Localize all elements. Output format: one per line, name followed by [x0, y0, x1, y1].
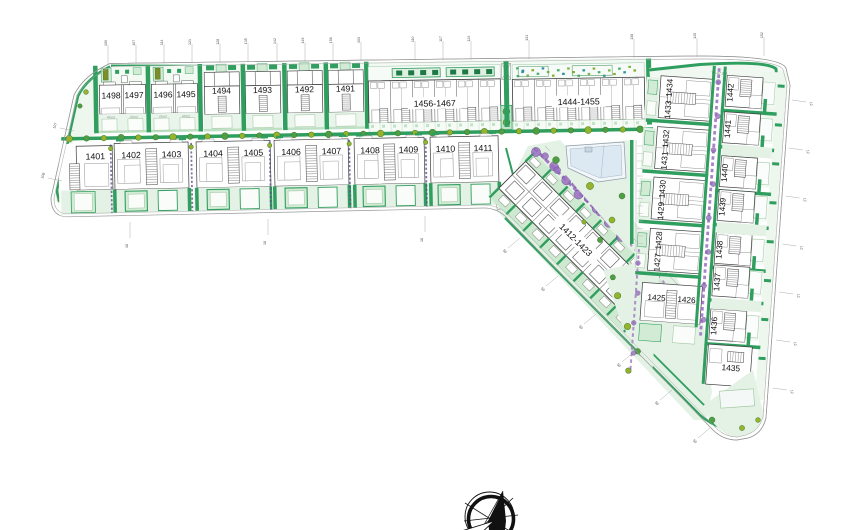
svg-text:1432: 1432	[661, 129, 671, 148]
svg-text:1498: 1498	[101, 90, 121, 100]
svg-text:1437: 1437	[712, 272, 722, 291]
svg-text:1442: 1442	[725, 83, 735, 102]
svg-text:1407: 1407	[322, 146, 342, 156]
svg-text:1402: 1402	[121, 150, 141, 160]
svg-text:100: 100	[104, 40, 108, 46]
svg-text:1408: 1408	[360, 145, 380, 155]
svg-text:12: 12	[789, 390, 794, 395]
svg-text:1401: 1401	[85, 151, 105, 161]
svg-text:1440: 1440	[720, 163, 730, 182]
svg-text:107: 107	[132, 40, 136, 46]
svg-text:1456-1467: 1456-1467	[414, 98, 456, 109]
svg-text:1410: 1410	[436, 144, 456, 154]
svg-text:142: 142	[273, 38, 277, 44]
svg-text:12: 12	[802, 198, 807, 203]
svg-text:131: 131	[525, 35, 529, 41]
svg-text:103: 103	[357, 37, 361, 43]
svg-text:1405: 1405	[244, 148, 264, 158]
svg-text:1497: 1497	[124, 90, 144, 100]
svg-text:1411: 1411	[473, 143, 492, 153]
svg-text:1439: 1439	[717, 197, 727, 216]
svg-text:149: 149	[301, 38, 305, 44]
svg-text:1438: 1438	[714, 240, 724, 259]
svg-text:1433: 1433	[663, 100, 673, 119]
svg-text:1492: 1492	[295, 84, 315, 94]
svg-text:128: 128	[216, 39, 220, 45]
svg-text:1491: 1491	[336, 83, 356, 93]
svg-text:156: 156	[329, 37, 333, 43]
svg-text:1494: 1494	[212, 85, 232, 95]
svg-text:1406: 1406	[281, 147, 301, 157]
svg-text:1430: 1430	[658, 179, 668, 198]
svg-text:145: 145	[693, 33, 697, 39]
svg-text:1444-1455: 1444-1455	[558, 96, 600, 107]
svg-text:18: 18	[420, 238, 424, 242]
svg-text:1428: 1428	[654, 231, 664, 250]
svg-text:12: 12	[805, 150, 810, 155]
svg-text:12: 12	[799, 246, 804, 251]
svg-text:1436: 1436	[709, 316, 719, 335]
svg-text:124: 124	[467, 36, 471, 42]
svg-text:1425: 1425	[647, 293, 666, 303]
svg-text:110: 110	[411, 36, 415, 42]
svg-text:1441: 1441	[723, 119, 733, 138]
svg-text:1496: 1496	[153, 89, 173, 99]
svg-text:114: 114	[160, 39, 164, 45]
svg-text:138: 138	[630, 34, 634, 40]
svg-text:12: 12	[809, 102, 814, 107]
svg-text:1427: 1427	[652, 253, 662, 272]
svg-text:1493: 1493	[253, 85, 273, 95]
svg-text:1404: 1404	[203, 148, 223, 158]
svg-text:1403: 1403	[162, 149, 182, 159]
svg-text:121: 121	[188, 39, 192, 45]
svg-text:152: 152	[760, 32, 764, 38]
svg-text:117: 117	[439, 36, 443, 42]
svg-text:1495: 1495	[176, 89, 196, 99]
svg-text:1429: 1429	[656, 201, 666, 220]
svg-text:1435: 1435	[721, 362, 741, 373]
svg-text:12: 12	[793, 342, 798, 347]
svg-text:18: 18	[125, 244, 129, 248]
svg-text:12: 12	[796, 294, 801, 299]
svg-text:18: 18	[263, 241, 267, 245]
svg-text:1434: 1434	[665, 78, 675, 97]
svg-text:1431: 1431	[660, 151, 670, 170]
svg-text:1409: 1409	[399, 144, 419, 154]
svg-text:135: 135	[244, 38, 248, 44]
svg-text:1426: 1426	[677, 295, 696, 305]
